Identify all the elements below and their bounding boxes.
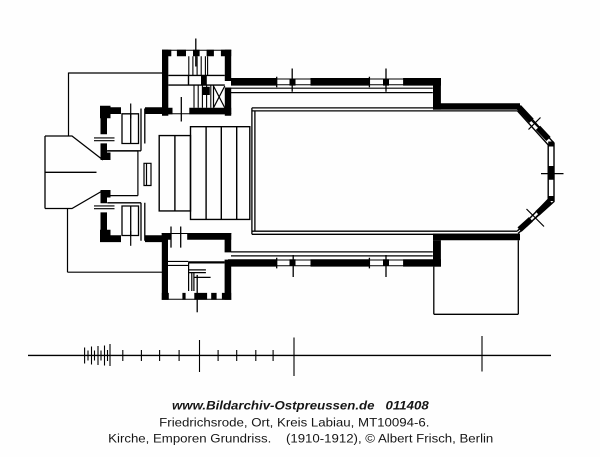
svg-text:Friedrichsrode, Ort, Kreis Lab: Friedrichsrode, Ort, Kreis Labiau, MT100… [159,416,429,430]
svg-text:www.Bildarchiv-Ostpreussen.de: www.Bildarchiv-Ostpreussen.de 011408 [172,399,429,413]
svg-text:Kirche, Emporen Grundriss.: Kirche, Emporen Grundriss. (1910-1912), … [108,432,493,446]
